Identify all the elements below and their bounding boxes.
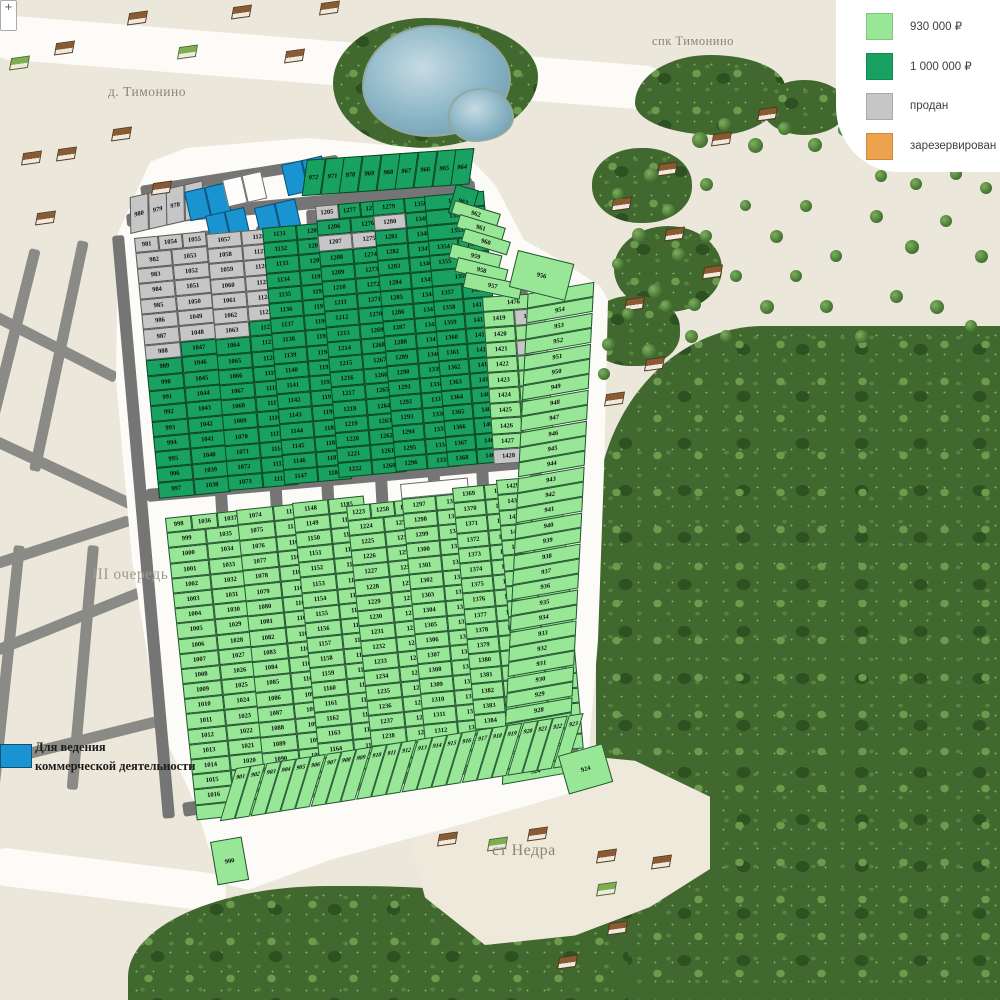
house-icon xyxy=(21,150,42,165)
tree-icon xyxy=(672,248,685,261)
phase3-label: III очередь xyxy=(92,566,168,584)
tree-icon xyxy=(760,300,774,314)
tree-icon xyxy=(890,290,903,303)
tree-icon xyxy=(790,270,802,282)
tree-icon xyxy=(612,258,624,270)
house-icon xyxy=(127,10,148,25)
tree-icon xyxy=(740,200,751,211)
legend-swatch-icon xyxy=(866,93,893,120)
plot-1147[interactable]: 1147 xyxy=(283,467,318,485)
green-house-icon xyxy=(9,55,30,70)
commercial-swatch-icon xyxy=(0,744,32,768)
tree-icon xyxy=(718,118,731,131)
tree-icon xyxy=(692,132,708,148)
phase3-road xyxy=(0,586,145,658)
zoom-control[interactable]: + xyxy=(0,0,17,31)
plot-964[interactable]: 964 xyxy=(451,148,475,186)
tree-icon xyxy=(855,330,868,343)
plot-1368[interactable]: 1368 xyxy=(446,449,477,467)
tree-icon xyxy=(875,170,887,182)
house-icon xyxy=(711,131,732,146)
house-icon xyxy=(319,0,340,15)
legend-item-1: 1 000 000 ₽ xyxy=(866,46,996,86)
house-icon xyxy=(604,391,625,406)
house-icon xyxy=(111,126,132,141)
bottom-left-road-band xyxy=(0,846,228,913)
price-legend: 930 000 ₽1 000 000 ₽проданзарезервирован xyxy=(866,6,996,166)
tree-icon xyxy=(830,250,842,262)
tree-icon xyxy=(975,250,988,263)
tree-icon xyxy=(688,298,701,311)
tree-icon xyxy=(642,344,656,358)
commercial-line2: коммерческой деятельности xyxy=(35,759,195,773)
tree-icon xyxy=(940,215,952,227)
tree-icon xyxy=(612,188,624,200)
legend-swatch-icon xyxy=(866,13,893,40)
tree-icon xyxy=(730,270,742,282)
legend-label: 1 000 000 ₽ xyxy=(910,59,972,73)
land-plot-map: 9809799789779729719709699689679669659649… xyxy=(0,0,1000,1000)
house-icon xyxy=(56,146,77,161)
legend-label: продан xyxy=(910,100,948,112)
tree-icon xyxy=(778,122,791,135)
tree-icon xyxy=(905,240,919,254)
tree-icon xyxy=(598,368,610,380)
tree-icon xyxy=(965,320,977,332)
legend-swatch-icon xyxy=(866,53,893,80)
spk-label: спк Тимонино xyxy=(652,34,734,49)
tree-icon xyxy=(748,138,763,153)
plot-1296[interactable]: 1296 xyxy=(394,454,427,472)
tree-icon xyxy=(700,178,713,191)
tree-icon xyxy=(770,230,783,243)
legend-item-0: 930 000 ₽ xyxy=(866,6,996,46)
tree-icon xyxy=(930,300,944,314)
village-label: д. Тимонино xyxy=(108,84,186,100)
legend-item-3: зарезервирован xyxy=(866,126,996,166)
tree-icon xyxy=(700,230,712,242)
legend-swatch-icon xyxy=(866,133,893,160)
tree-icon xyxy=(910,178,922,190)
tree-icon xyxy=(622,308,634,320)
tree-icon xyxy=(685,330,698,343)
house-icon xyxy=(231,4,252,19)
pond-lobe xyxy=(448,88,514,142)
tree-icon xyxy=(720,330,732,342)
legend-label: зарезервирован xyxy=(910,140,996,152)
tree-icon xyxy=(820,300,833,313)
plot-980[interactable]: 980 xyxy=(130,193,149,234)
station-label: ст Недра xyxy=(492,842,556,860)
commercial-legend-text: Для ведения коммерческой деятельности xyxy=(35,738,215,777)
forest-patch xyxy=(635,55,785,135)
tree-icon xyxy=(660,300,672,312)
tree-icon xyxy=(632,228,646,242)
tree-icon xyxy=(662,204,675,217)
phase3-road xyxy=(0,248,41,459)
tree-icon xyxy=(870,210,883,223)
tree-icon xyxy=(602,338,615,351)
tree-icon xyxy=(648,284,662,298)
legend-item-2: продан xyxy=(866,86,996,126)
tree-icon xyxy=(644,168,658,182)
plot-1073[interactable]: 1073 xyxy=(227,473,263,491)
tree-icon xyxy=(980,182,992,194)
commercial-line1: Для ведения xyxy=(35,740,106,754)
plot-1222[interactable]: 1222 xyxy=(338,460,373,478)
tree-icon xyxy=(800,200,812,212)
forest-patch xyxy=(592,148,692,223)
tree-icon xyxy=(808,138,822,152)
house-icon xyxy=(35,210,56,225)
legend-label: 930 000 ₽ xyxy=(910,19,962,33)
